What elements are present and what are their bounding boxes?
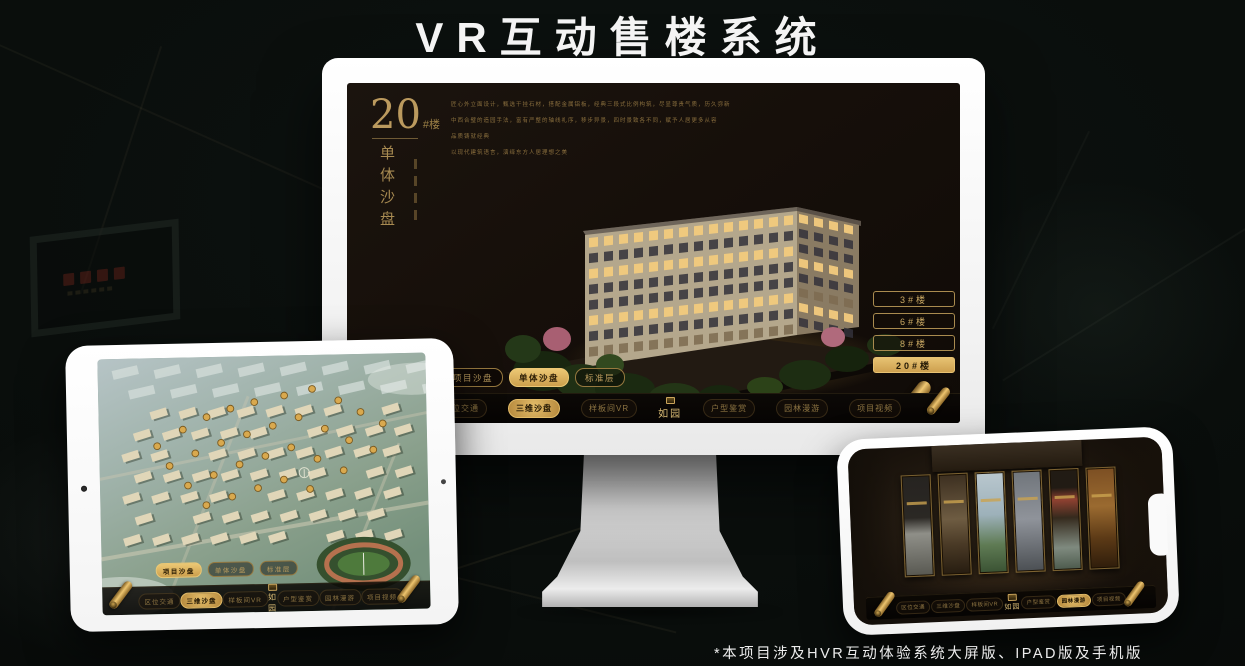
- headline-accent-dots: [414, 159, 417, 220]
- tower-selector: 3#楼 6#楼 8#楼 20#楼: [873, 291, 955, 373]
- menu-item[interactable]: 三维沙盘: [931, 598, 966, 612]
- tab-single-building-sandbox[interactable]: 单体沙盘: [208, 561, 254, 577]
- menu-item[interactable]: 三维沙盘: [180, 591, 222, 608]
- menu-item[interactable]: 项目视频: [849, 399, 901, 418]
- sandbox-mode-tabs: 项目沙盘 单体沙盘 标准层: [156, 560, 298, 578]
- menu-item[interactable]: 户型鉴赏: [1021, 595, 1056, 609]
- ipad-device: 项目沙盘 单体沙盘 标准层 区位交通三维沙盘样板间VR如园户型鉴赏园林漫游项目视…: [65, 338, 459, 632]
- gallery-panel[interactable]: [1048, 468, 1082, 571]
- intro-line: 中西合璧的造园手法，富有严整的轴线礼序，移步异景，四时景致各不同，赋予人居更多从…: [451, 113, 751, 129]
- scroll-icon: [928, 388, 950, 416]
- page-title: VR互动售楼系统: [0, 4, 1245, 65]
- interior-doorframe: [931, 440, 1082, 472]
- menu-item[interactable]: 区位交通: [896, 600, 931, 614]
- gallery-panel[interactable]: [1085, 466, 1119, 569]
- promo-poster: VR互动售楼系统 20#楼 单体沙盘 匠心外立面设计，甄选干挂石材，搭配金属铝板…: [0, 0, 1245, 666]
- scroll-icon: [1124, 582, 1145, 608]
- logo-text: 如园: [1004, 602, 1020, 613]
- gallery-panel[interactable]: [901, 474, 935, 577]
- scroll-icon: [875, 592, 896, 618]
- scroll-icon: [110, 582, 133, 610]
- ipad-camera-icon: [81, 486, 87, 492]
- menu-item[interactable]: 区位交通: [138, 592, 180, 609]
- tower-button-8[interactable]: 8#楼: [873, 335, 955, 351]
- gallery-panels: [901, 466, 1120, 577]
- menu-item[interactable]: 户型鉴赏: [277, 589, 319, 606]
- tab-standard-floor[interactable]: 标准层: [575, 368, 625, 387]
- background-glow: [950, 180, 1245, 440]
- tab-single-building-sandbox[interactable]: 单体沙盘: [509, 368, 569, 387]
- project-logo[interactable]: 如园: [658, 397, 682, 420]
- phone-screen: 区位交通三维沙盘样板间VR如园户型鉴赏园林漫游项目视频: [847, 437, 1168, 626]
- gallery-panel[interactable]: [975, 471, 1009, 574]
- ipad-screen: 项目沙盘 单体沙盘 标准层 区位交通三维沙盘样板间VR如园户型鉴赏园林漫游项目视…: [97, 353, 430, 616]
- screen-headline: 20#楼 单体沙盘: [370, 95, 450, 255]
- tower-button-6[interactable]: 6#楼: [873, 313, 955, 329]
- logo-seal-icon: [268, 583, 277, 590]
- menu-item[interactable]: 样板间VR: [966, 597, 1003, 612]
- background-plaque: [30, 219, 181, 338]
- sandbox-mode-tabs: 项目沙盘 单体沙盘 标准层: [443, 368, 625, 387]
- logo-text: 如园: [268, 591, 277, 613]
- building-number-suffix: #楼: [423, 119, 440, 131]
- ipad-button-icon: [441, 479, 446, 484]
- logo-seal-icon: [666, 397, 675, 404]
- scroll-icon: [398, 576, 421, 604]
- menu-item[interactable]: 项目视频: [1092, 592, 1127, 606]
- tab-project-sandbox[interactable]: 项目沙盘: [156, 562, 202, 578]
- logo-text: 如园: [658, 405, 682, 420]
- tab-standard-floor[interactable]: 标准层: [260, 560, 298, 576]
- menu-item[interactable]: 园林漫游: [776, 399, 828, 418]
- project-logo[interactable]: 如园: [1004, 594, 1021, 613]
- headline-vertical-title: 单体沙盘: [376, 145, 397, 255]
- menu-item[interactable]: 三维沙盘: [508, 399, 560, 418]
- menu-item[interactable]: 园林漫游: [1056, 593, 1091, 607]
- gallery-panel[interactable]: [938, 473, 972, 576]
- phone-notch: [1148, 493, 1169, 556]
- tower-button-20[interactable]: 20#楼: [873, 357, 955, 373]
- menu-item[interactable]: 园林漫游: [319, 588, 361, 605]
- logo-seal-icon: [1007, 594, 1016, 601]
- building-number: 20: [370, 92, 421, 138]
- menu-item[interactable]: 样板间VR: [581, 399, 637, 418]
- gallery-panel[interactable]: [1011, 470, 1045, 573]
- intro-line: 匠心外立面设计，甄选干挂石材，搭配金属铝板，经典三段式比例构筑，尽显尊贵气质，历…: [451, 97, 751, 113]
- tower-button-3[interactable]: 3#楼: [873, 291, 955, 307]
- phone-device: 区位交通三维沙盘样板间VR如园户型鉴赏园林漫游项目视频: [836, 426, 1180, 636]
- footnote: *本项目涉及HVR互动体验系统大屏版、IPAD版及手机版: [714, 642, 1143, 663]
- menu-item[interactable]: 样板间VR: [222, 590, 268, 607]
- main-menu-bar: 区位交通三维沙盘样板间VR如园户型鉴赏园林漫游项目视频: [102, 581, 431, 616]
- project-logo[interactable]: 如园: [268, 583, 278, 613]
- menu-item[interactable]: 户型鉴赏: [703, 399, 755, 418]
- headline-rule: [372, 138, 418, 139]
